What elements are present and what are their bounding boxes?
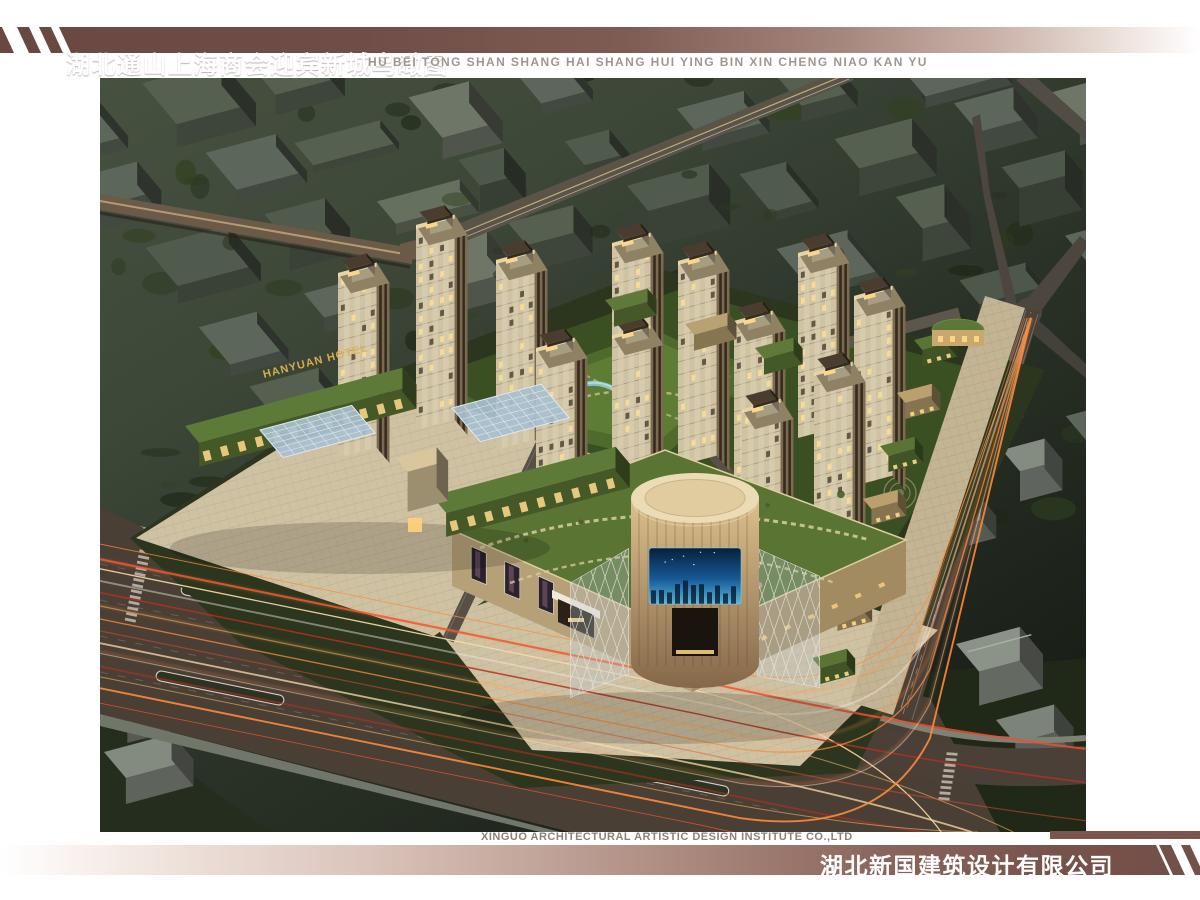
page-title-pinyin: HU BEI TONG SHAN SHANG HAI SHANG HUI YIN… — [368, 55, 928, 69]
footer-banner: 湖北新国建筑设计有限公司 — [0, 845, 1176, 875]
footer-thin-strip — [1050, 831, 1200, 839]
corner-stripes-icon — [1181, 845, 1200, 875]
footer-company-en: XINGUO ARCHITECTURAL ARTISTIC DESIGN INS… — [481, 831, 853, 843]
aerial-rendering: HANYUAN HOTEL — [100, 78, 1086, 832]
aerial-rendering-svg: HANYUAN HOTEL — [100, 78, 1086, 832]
footer-company-cn: 湖北新国建筑设计有限公司 — [820, 847, 1114, 881]
presentation-board: 湖北通山上海商会迎宾新城鸟瞰图 HU BEI TONG SHAN SHANG H… — [0, 0, 1200, 900]
